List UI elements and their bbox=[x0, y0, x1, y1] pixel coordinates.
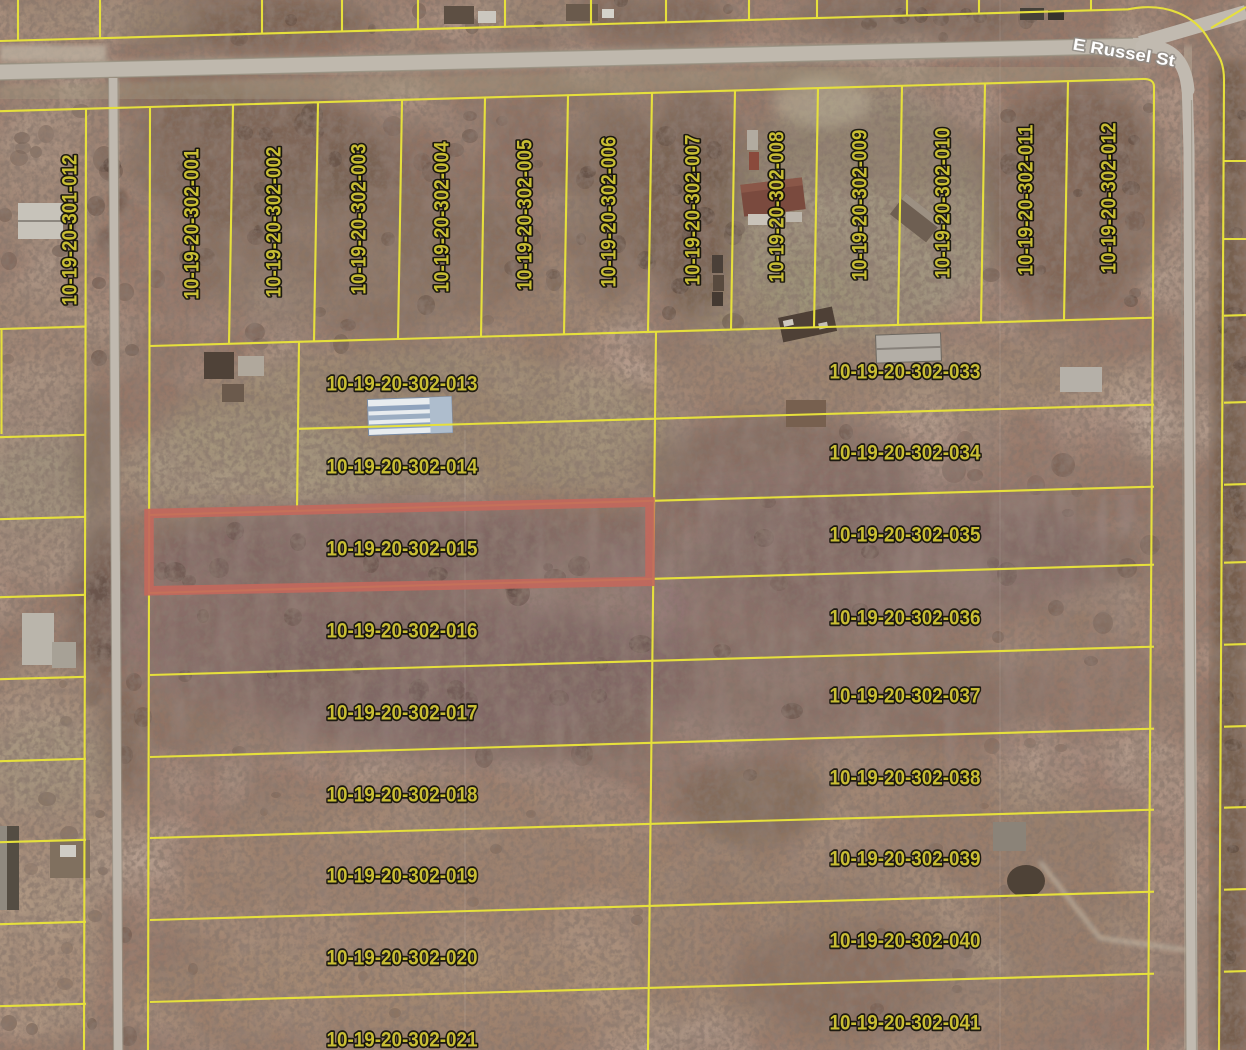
svg-text:10-19-20-302-018: 10-19-20-302-018 bbox=[327, 783, 478, 807]
svg-text:10-19-20-301-012: 10-19-20-301-012 bbox=[58, 154, 82, 305]
svg-text:10-19-20-302-034: 10-19-20-302-034 bbox=[830, 441, 981, 465]
svg-text:10-19-20-302-038: 10-19-20-302-038 bbox=[830, 766, 981, 790]
svg-text:10-19-20-302-015: 10-19-20-302-015 bbox=[327, 537, 478, 561]
svg-text:10-19-20-302-035: 10-19-20-302-035 bbox=[830, 523, 981, 547]
svg-text:10-19-20-302-001: 10-19-20-302-001 bbox=[180, 148, 204, 299]
svg-text:10-19-20-302-007: 10-19-20-302-007 bbox=[681, 134, 705, 285]
svg-text:10-19-20-302-003: 10-19-20-302-003 bbox=[347, 143, 371, 294]
svg-text:10-19-20-302-016: 10-19-20-302-016 bbox=[327, 619, 478, 643]
svg-text:10-19-20-302-014: 10-19-20-302-014 bbox=[327, 455, 478, 479]
svg-text:10-19-20-302-010: 10-19-20-302-010 bbox=[931, 127, 955, 278]
svg-text:10-19-20-302-004: 10-19-20-302-004 bbox=[430, 141, 454, 292]
svg-text:10-19-20-302-009: 10-19-20-302-009 bbox=[848, 129, 872, 280]
svg-text:10-19-20-302-033: 10-19-20-302-033 bbox=[830, 360, 981, 384]
svg-text:10-19-20-302-021: 10-19-20-302-021 bbox=[327, 1028, 478, 1050]
svg-text:10-19-20-302-005: 10-19-20-302-005 bbox=[513, 139, 537, 290]
svg-text:10-19-20-302-008: 10-19-20-302-008 bbox=[765, 131, 789, 282]
svg-text:10-19-20-302-020: 10-19-20-302-020 bbox=[327, 946, 478, 970]
svg-text:10-19-20-302-041: 10-19-20-302-041 bbox=[830, 1011, 981, 1035]
svg-text:10-19-20-302-017: 10-19-20-302-017 bbox=[327, 701, 478, 725]
svg-text:10-19-20-302-040: 10-19-20-302-040 bbox=[830, 929, 981, 953]
svg-text:10-19-20-302-036: 10-19-20-302-036 bbox=[830, 606, 981, 630]
svg-text:10-19-20-302-011: 10-19-20-302-011 bbox=[1014, 124, 1038, 275]
svg-text:10-19-20-302-002: 10-19-20-302-002 bbox=[262, 146, 286, 297]
svg-text:10-19-20-302-006: 10-19-20-302-006 bbox=[597, 136, 621, 287]
svg-text:10-19-20-302-039: 10-19-20-302-039 bbox=[830, 847, 981, 871]
svg-text:10-19-20-302-012: 10-19-20-302-012 bbox=[1097, 122, 1121, 273]
svg-text:10-19-20-302-019: 10-19-20-302-019 bbox=[327, 864, 478, 888]
svg-text:10-19-20-302-037: 10-19-20-302-037 bbox=[830, 684, 981, 708]
svg-text:10-19-20-302-013: 10-19-20-302-013 bbox=[327, 372, 478, 396]
